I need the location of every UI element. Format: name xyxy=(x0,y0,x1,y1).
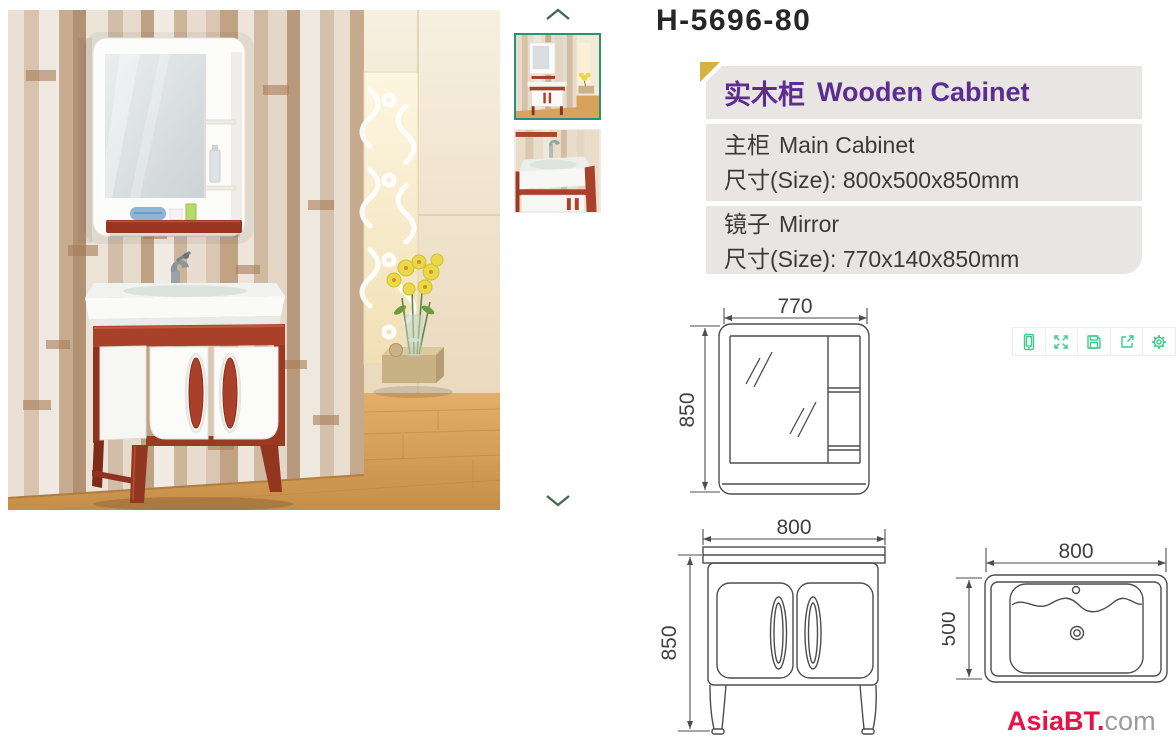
mirror-glass-marks xyxy=(746,352,816,437)
product-model-title: H-5696-80 xyxy=(656,4,811,38)
cabinet-height-label: 850 xyxy=(658,625,681,660)
product-viewer-page: H-5696-80 实木柜 Wooden Cabinet 主柜Main Cabi… xyxy=(0,0,1176,745)
share-button[interactable] xyxy=(1110,328,1143,355)
basin-width-label: 800 xyxy=(1058,540,1093,563)
thumbnail-basin-image xyxy=(515,130,600,212)
basin-height-label: 500 xyxy=(942,611,960,646)
mobile-preview-icon xyxy=(1020,333,1038,351)
fullscreen-button[interactable] xyxy=(1045,328,1078,355)
thumbnail-scene-image xyxy=(516,35,599,118)
basin-outline xyxy=(985,575,1167,682)
save-button[interactable] xyxy=(1077,328,1110,355)
main-product-image[interactable] xyxy=(8,10,500,510)
spec-size: 尺寸(Size): 800x500x850mm xyxy=(706,163,1142,198)
spec-name-en: Mirror xyxy=(779,211,839,237)
spec-name-en: Main Cabinet xyxy=(779,132,915,158)
cabinet-dimension-drawing: 800 850 xyxy=(652,517,897,745)
mirror-width-label: 770 xyxy=(777,295,812,318)
category-name-en: Wooden Cabinet xyxy=(817,77,1030,108)
site-watermark-link[interactable]: AsiaBT.com xyxy=(1007,706,1156,737)
spec-main-cabinet: 主柜Main Cabinet 尺寸(Size): 800x500x850mm xyxy=(706,124,1142,201)
category-name-cn: 实木柜 xyxy=(724,73,805,112)
spec-name-cn: 镜子 xyxy=(724,211,770,237)
watermark-brand: AsiaBT. xyxy=(1007,706,1105,736)
thumbnail-basin[interactable] xyxy=(514,129,601,213)
mirror-unit xyxy=(84,32,254,244)
mirror-outline xyxy=(719,324,869,494)
gallery-scroll-up-button[interactable] xyxy=(534,2,582,28)
basin-dimension-drawing: 800 500 xyxy=(942,532,1174,707)
bathroom-scene-illustration xyxy=(8,10,500,510)
chevron-up-icon xyxy=(544,7,572,21)
watermark-suffix: com xyxy=(1105,706,1156,736)
spec-name-cn: 主柜 xyxy=(724,132,770,158)
cabinet-width-label: 800 xyxy=(776,517,811,539)
gallery-scroll-down-button[interactable] xyxy=(534,489,582,515)
mirror-height-label: 850 xyxy=(676,392,699,427)
thumbnail-scene[interactable] xyxy=(514,33,601,120)
mobile-preview-button[interactable] xyxy=(1013,328,1045,355)
chevron-down-icon xyxy=(544,494,572,508)
mirror-dimension-drawing: 770 850 xyxy=(672,288,897,508)
save-icon xyxy=(1085,333,1103,351)
cabinet-outline xyxy=(703,547,885,734)
share-icon xyxy=(1118,333,1136,351)
spec-mirror: 镜子Mirror 尺寸(Size): 770x140x850mm xyxy=(706,206,1142,274)
category-header: 实木柜 Wooden Cabinet xyxy=(706,66,1142,119)
settings-icon xyxy=(1150,333,1168,351)
viewer-toolbar xyxy=(1012,327,1176,356)
spec-size: 尺寸(Size): 770x140x850mm xyxy=(706,242,1142,277)
fullscreen-icon xyxy=(1052,333,1070,351)
settings-button[interactable] xyxy=(1142,328,1175,355)
